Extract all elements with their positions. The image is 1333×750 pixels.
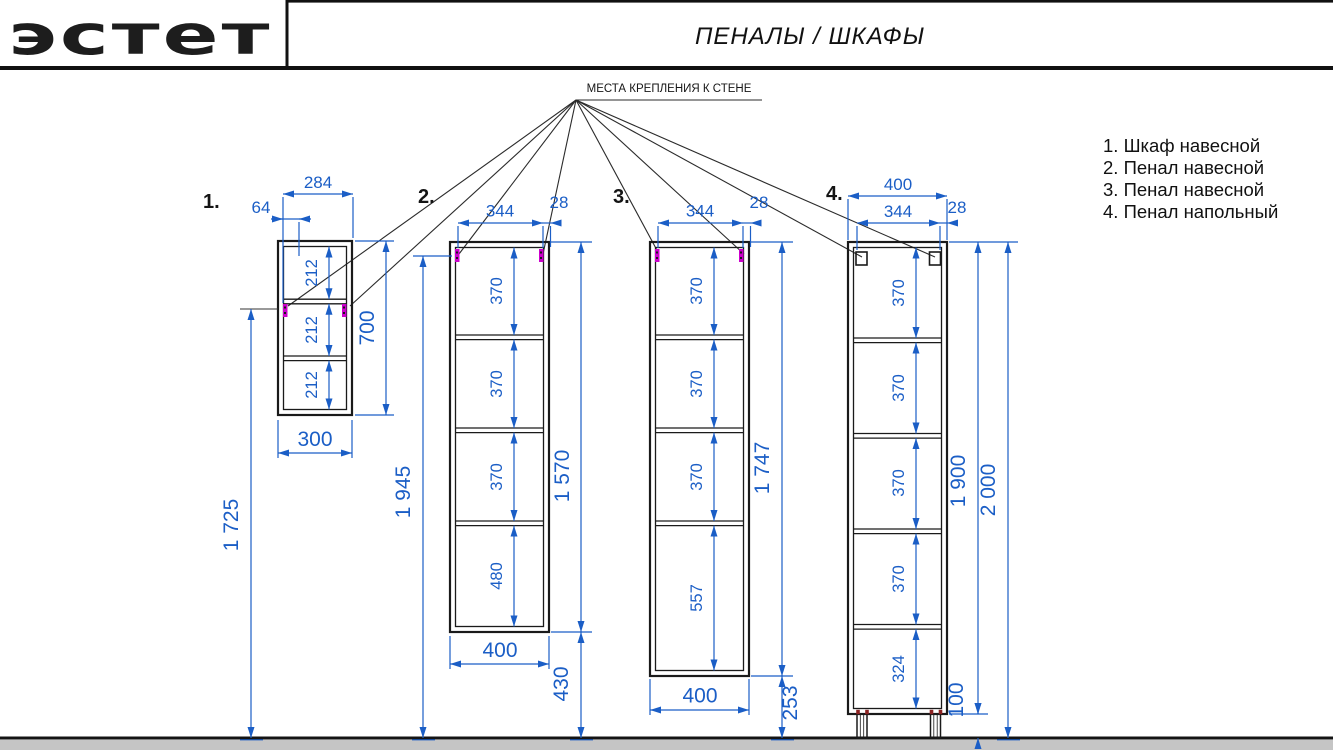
mount-clip-icon (739, 249, 744, 262)
cabinet-leg (930, 710, 943, 738)
cabinet-3-number: 3. (613, 186, 630, 208)
cabinet-4: 4. 400 344 28 (826, 175, 1020, 749)
technical-drawing: эстет ПЕНАЛЫ / ШКАФЫ 1. Шкаф навесной 2.… (0, 0, 1333, 750)
header-top-border (287, 0, 1333, 3)
mount-bracket-icon (930, 252, 941, 265)
leader-line (459, 100, 576, 254)
dim-bottom-width: 400 (482, 639, 517, 662)
mount-clip-icon (539, 249, 544, 262)
dim-compartment: 370 (488, 370, 506, 398)
drawing-sheet: эстет ПЕНАЛЫ / ШКАФЫ 1. Шкаф навесной 2.… (0, 0, 1333, 750)
dim-compartment: 370 (688, 463, 706, 491)
dim-bottom-width: 300 (297, 428, 332, 451)
page-title: ПЕНАЛЫ / ШКАФЫ (695, 23, 925, 50)
mount-clip-icon (342, 304, 347, 317)
leader-line (543, 100, 576, 254)
dim-top-width: 400 (884, 175, 912, 194)
legend-item-4: 4. Пенал напольный (1103, 201, 1278, 222)
dim-compartment: 370 (890, 374, 908, 402)
wall-mount-label: МЕСТА КРЕПЛЕНИЯ К СТЕНЕ (587, 83, 752, 95)
dim-height: 1 747 (751, 442, 774, 495)
dim-compartment: 370 (890, 279, 908, 307)
dim-compartment: 557 (688, 584, 706, 612)
legend-item-1: 1. Шкаф навесной (1103, 135, 1260, 156)
dim-floor-clearance: 253 (779, 685, 802, 720)
dim-compartment: 370 (488, 463, 506, 491)
legend: 1. Шкаф навесной 2. Пенал навесной 3. Пе… (1103, 135, 1278, 222)
mount-clip-icon (655, 249, 660, 262)
dim-mount-edge: 28 (948, 198, 967, 217)
floor-band (0, 740, 1333, 750)
dim-mount-height: 1 725 (220, 499, 243, 552)
legend-item-2: 2. Пенал навесной (1103, 157, 1264, 178)
dim-height: 1 570 (551, 450, 574, 503)
dim-mount-height: 1 945 (392, 466, 415, 519)
leader-line (576, 100, 744, 254)
cabinet-1-number: 1. (203, 191, 220, 213)
dim-mount-span: 344 (686, 202, 714, 221)
dim-compartment: 370 (688, 277, 706, 305)
cabinet-1: 1. 284 64 700 300 1 72 (203, 173, 394, 740)
dim-mount-edge: 28 (550, 193, 569, 212)
leader-line (576, 100, 935, 257)
dim-mount-span: 344 (486, 202, 514, 221)
cabinet-4-number: 4. (826, 183, 843, 205)
dim-compartment: 212 (303, 259, 321, 287)
dim-compartment: 370 (890, 469, 908, 497)
floor (0, 738, 1333, 750)
title-block: эстет ПЕНАЛЫ / ШКАФЫ (0, 0, 1333, 70)
dim-mount-edge: 28 (750, 193, 769, 212)
legend-item-3: 3. Пенал навесной (1103, 179, 1264, 200)
dim-compartment: 212 (303, 316, 321, 344)
dim-mount-offset: 64 (252, 198, 271, 217)
leader-line (350, 100, 576, 306)
dim-top-width: 284 (304, 173, 332, 192)
dim-compartment: 370 (890, 565, 908, 593)
cabinet-leg (856, 710, 869, 738)
dim-height: 700 (356, 310, 379, 345)
dim-compartment: 212 (303, 371, 321, 399)
mount-clip-icon (455, 249, 460, 262)
dim-compartment: 324 (890, 655, 908, 683)
dim-body-height: 1 900 (947, 455, 970, 508)
dim-compartment: 370 (488, 277, 506, 305)
brand-logo: эстет (8, 3, 272, 67)
dim-floor-clearance: 430 (550, 666, 573, 701)
dim-mount-span: 344 (884, 202, 912, 221)
dim-compartment: 370 (688, 370, 706, 398)
cabinet-2: 2. 344 28 1 570 430 1 945 (392, 186, 593, 740)
dim-compartment: 480 (488, 562, 506, 590)
dim-leg-height: 100 (945, 682, 968, 717)
cabinet-3: 3. 344 28 1 747 253 400 (613, 186, 802, 740)
dim-bottom-width: 400 (682, 685, 717, 708)
cabinet-2-number: 2. (418, 186, 435, 208)
dim-total-height: 2 000 (977, 464, 1000, 517)
brand-logo-text: эстет (8, 3, 272, 67)
mount-clip-icon (283, 304, 288, 317)
mount-bracket-icon (856, 252, 867, 265)
header-divider (286, 0, 289, 70)
